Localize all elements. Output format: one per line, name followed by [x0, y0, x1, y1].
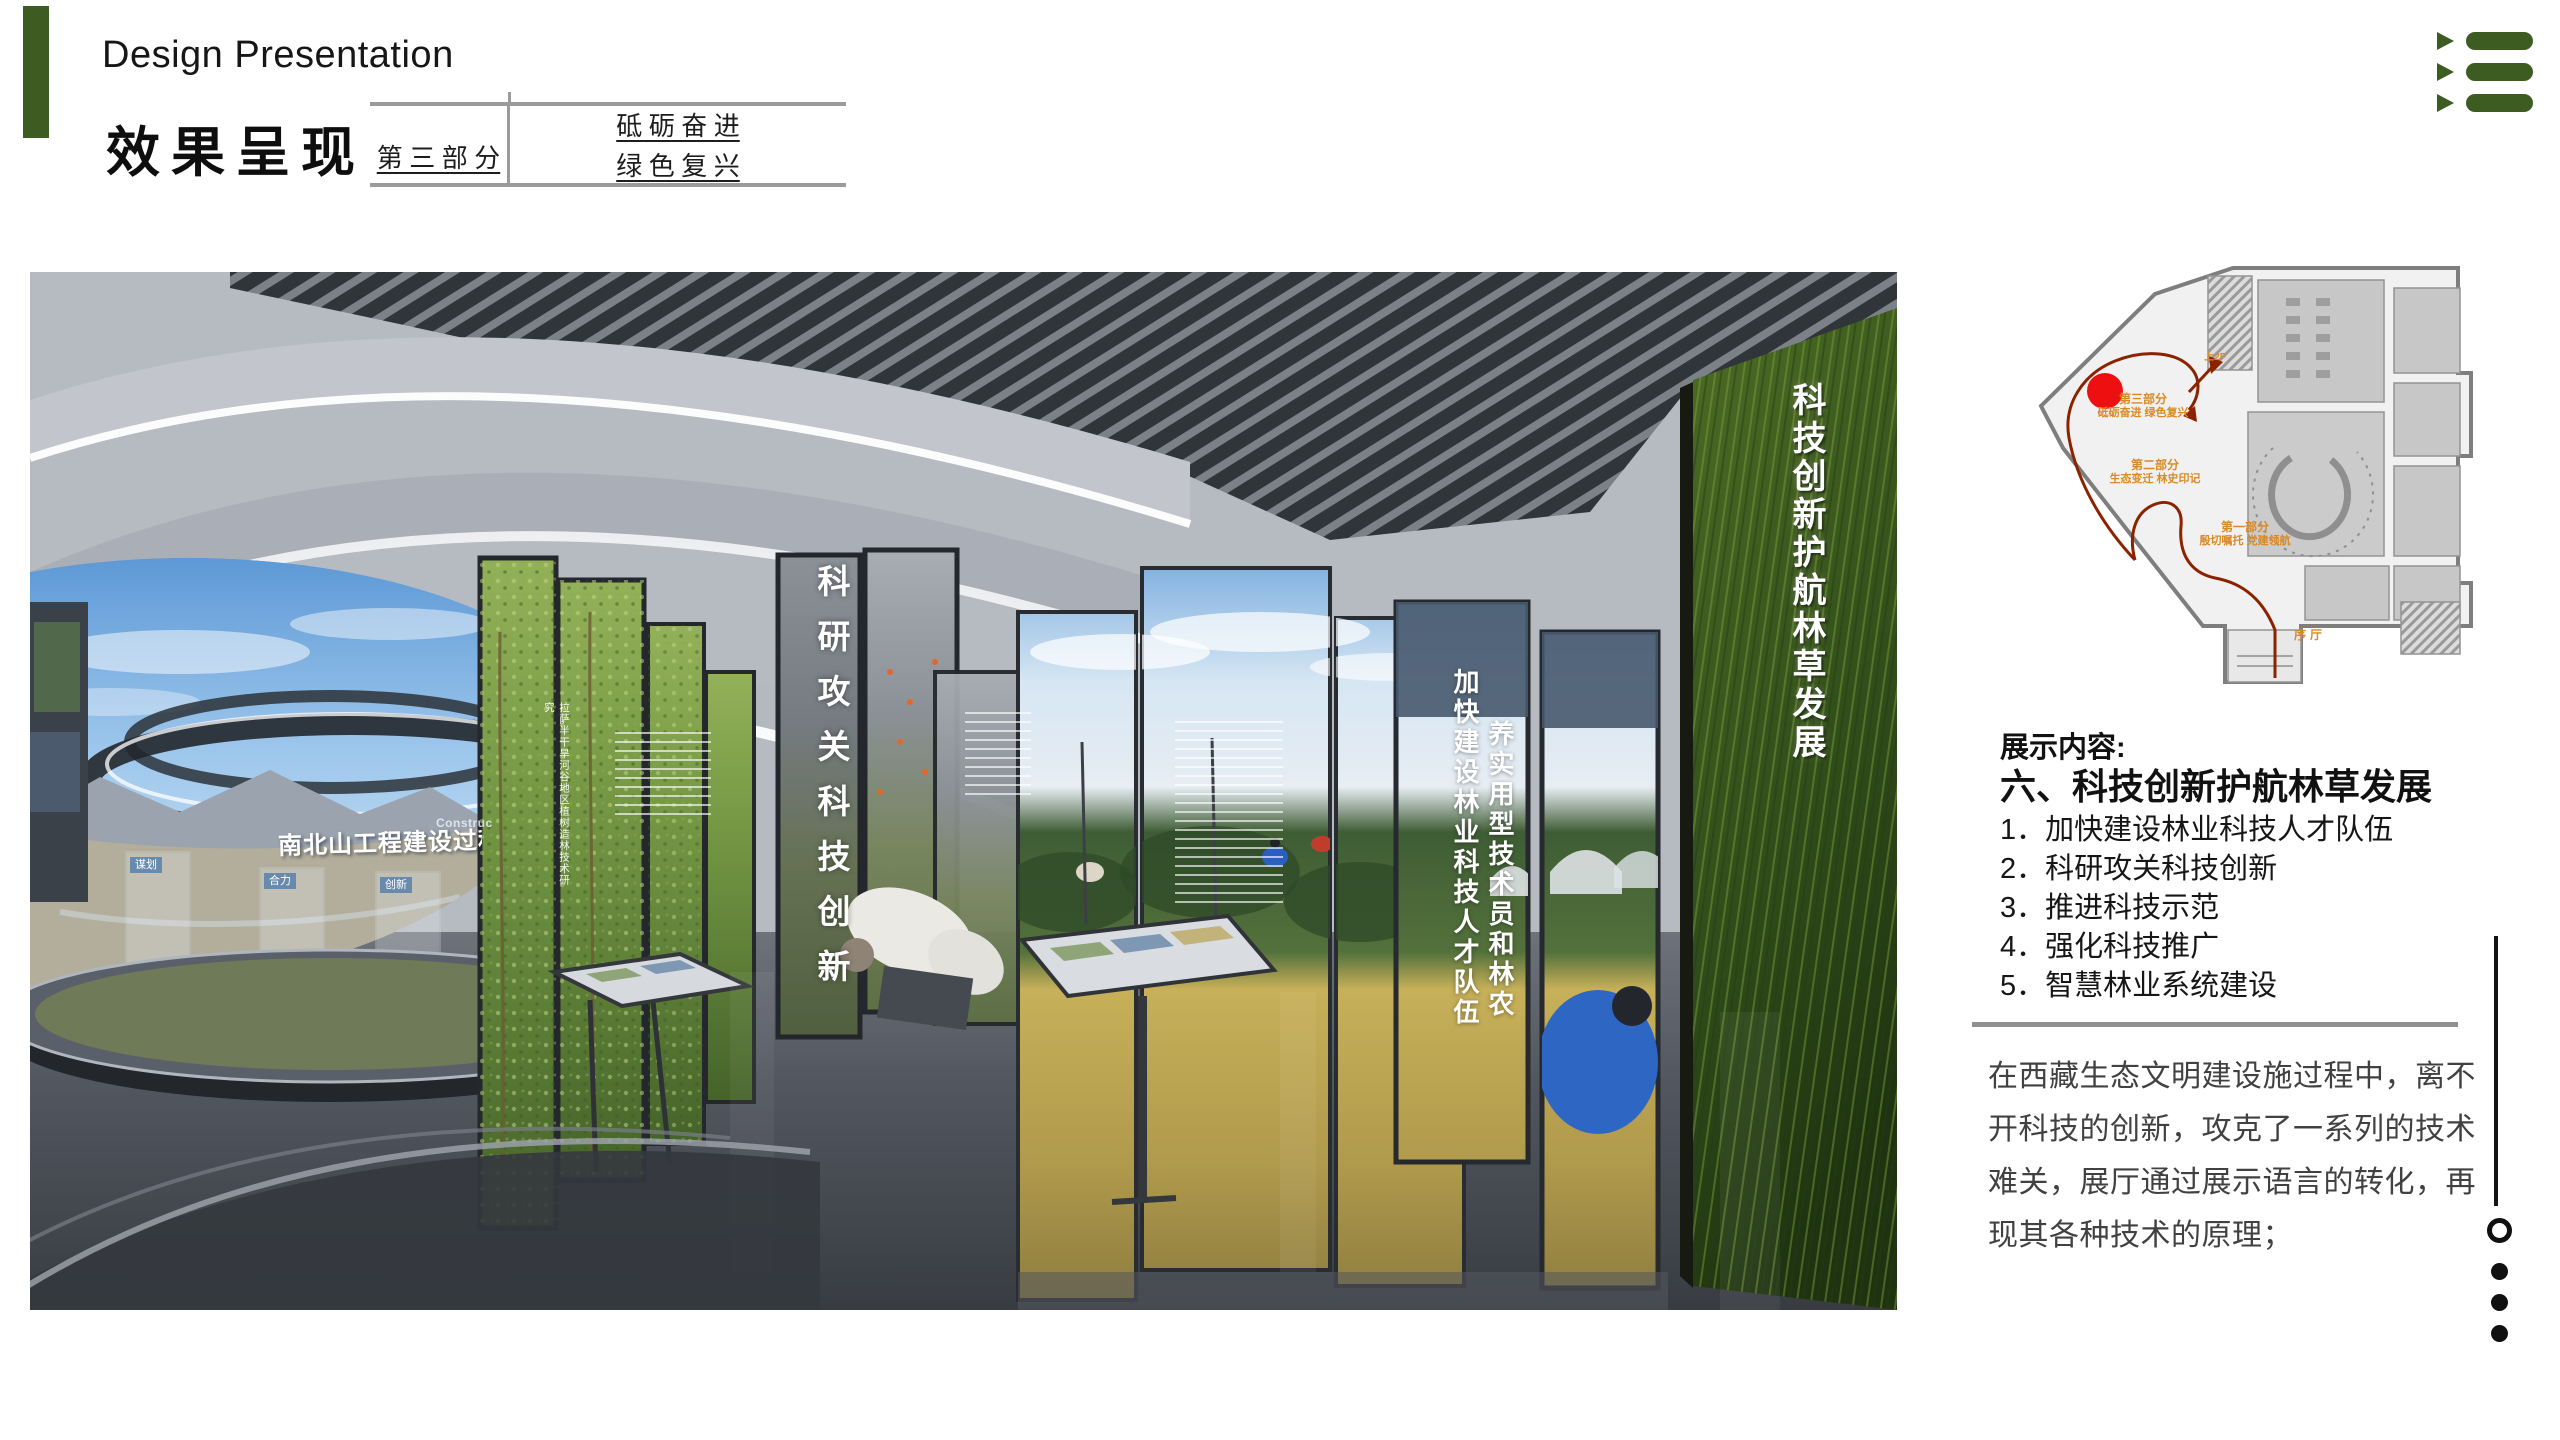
content-item: 3．推进科技示范 — [2000, 884, 2219, 926]
part-name-line2: 绿 色 复 兴 — [616, 146, 740, 183]
plan-label-lobby: 序厅 — [2294, 628, 2326, 642]
section-title: 六、科技创新护航林草发展 — [2000, 758, 2432, 810]
toc-list-row — [2437, 32, 2533, 50]
plan-label-part1: 第一部分 殷切嘱托 党建领航 — [2199, 520, 2290, 548]
render-scene — [30, 272, 1897, 1310]
toc-list-icon[interactable] — [2437, 32, 2533, 112]
content-item: 4．强化科技推广 — [2000, 923, 2219, 965]
plan-label-part2: 第二部分 生态变迁 林史印记 — [2109, 458, 2200, 486]
research-panel-label: 科研攻关科技创新 — [807, 564, 855, 1039]
pager-dot[interactable] — [2491, 1263, 2508, 1280]
content-item: 5．智慧林业系统建设 — [2000, 962, 2277, 1004]
panel-caption-lines — [615, 732, 711, 817]
triangle-bullet-icon — [2437, 32, 2454, 50]
headline-panel-label: 科技创新护航林草发展 — [1782, 382, 1831, 802]
content-item: 2．科研攻关科技创新 — [2000, 845, 2277, 887]
pager-dot-current[interactable] — [2487, 1218, 2512, 1243]
talent-panel-label: 加快建设林业科技人才队伍 — [1447, 668, 1484, 1058]
part-number-cell: 第 三 部 分 — [370, 106, 510, 183]
floor-plan-drawing — [2003, 258, 2495, 692]
glass-panel-label: 创新 — [380, 877, 412, 893]
vertical-rule — [2494, 936, 2498, 1206]
section-divider — [1972, 1022, 2458, 1027]
triangle-bullet-icon — [2437, 63, 2454, 81]
screen-caption-en: Construc — [436, 816, 493, 830]
part-table: 第 三 部 分 砥 砺 奋 进 绿 色 复 兴 — [370, 102, 846, 187]
exhibition-hall-render: 南北山工程建设过程 Construc 谋划 合力 创新 拉萨半干旱河谷地区植树造… — [30, 272, 1897, 1310]
plan-label-part3: 第三部分 砥砺奋进 绿色复兴 — [2097, 392, 2188, 420]
panel-caption-lines — [965, 712, 1031, 798]
pager-dot[interactable] — [2491, 1325, 2508, 1342]
page-title-en: Design Presentation — [102, 34, 454, 77]
toc-list-row — [2437, 63, 2533, 81]
glass-panel-label: 合力 — [264, 873, 296, 889]
practical-panel-label: 养实用型技术员和林农 — [1482, 720, 1519, 1050]
page-title-zh: 效果呈现 — [106, 108, 366, 187]
list-bar — [2466, 32, 2533, 50]
pager-dot[interactable] — [2491, 1294, 2508, 1311]
glass-panel-label: 谋划 — [130, 857, 162, 873]
plan-label-upstairs: 上2F — [2204, 348, 2226, 363]
panel-caption-lines — [1175, 721, 1283, 909]
content-item: 1．加快建设林业科技人才队伍 — [2000, 806, 2393, 848]
triangle-bullet-icon — [2437, 94, 2454, 112]
list-bar — [2466, 63, 2533, 81]
part-name-cell: 砥 砺 奋 进 绿 色 复 兴 — [510, 106, 846, 183]
description-paragraph: 在西藏生态文明建设施过程中，离不开科技的创新，攻克了一系列的技术难关，展厅通过展… — [1988, 1050, 2482, 1262]
accent-bar — [23, 6, 49, 138]
part-name-line1: 砥 砺 奋 进 — [616, 106, 740, 143]
toc-list-row — [2437, 94, 2533, 112]
floor-plan-map: 第三部分 砥砺奋进 绿色复兴 第二部分 生态变迁 林史印记 第一部分 殷切嘱托 … — [2003, 258, 2495, 692]
part-number: 第 三 部 分 — [377, 138, 501, 175]
sapling-panel-label: 拉萨半干旱河谷地区植树造林技术研究 — [542, 702, 572, 897]
practical-panel — [1542, 632, 1658, 1288]
list-bar — [2466, 94, 2533, 112]
